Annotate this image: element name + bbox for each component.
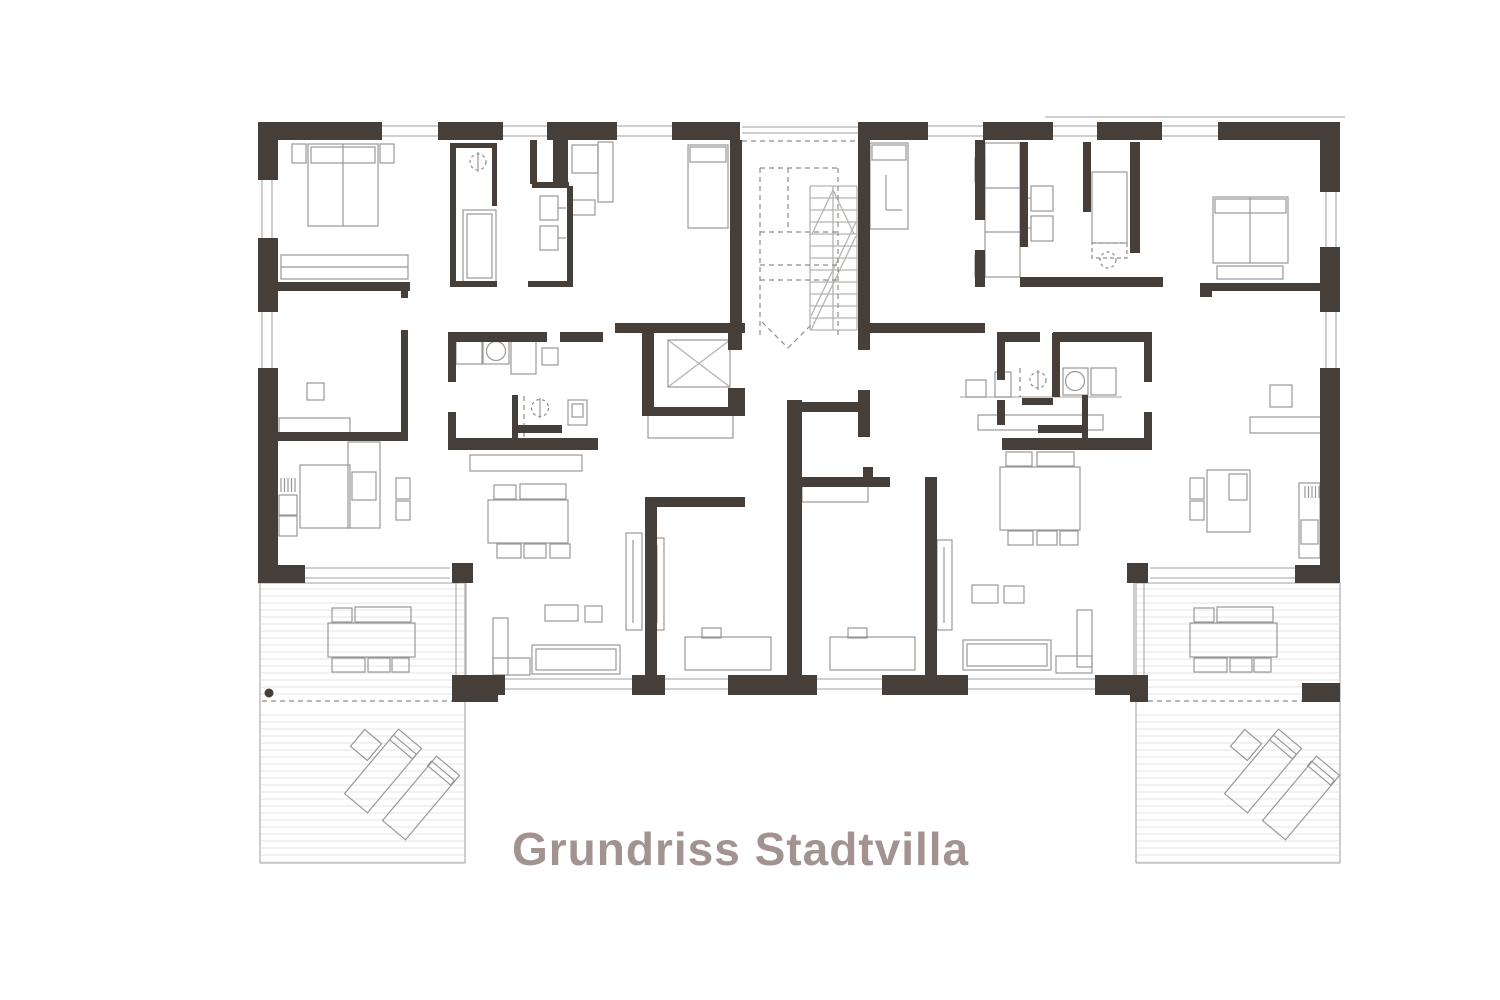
wall-segment [1320, 247, 1340, 312]
furniture-rect [1254, 658, 1271, 672]
furniture-rect [545, 605, 578, 621]
wall-segment [452, 683, 498, 702]
furniture-rect [690, 147, 726, 162]
wall-segment [728, 675, 817, 695]
wall-segment [1052, 333, 1060, 397]
furniture-rect [1230, 658, 1252, 672]
wall-segment [1082, 395, 1088, 440]
furniture-rect [524, 544, 546, 558]
wall-segment [450, 143, 497, 148]
wall-segment [672, 122, 740, 140]
wall-segment [1130, 683, 1148, 702]
furniture-rect [830, 637, 915, 670]
furniture-rect [1250, 417, 1322, 433]
furniture-rect [392, 658, 409, 672]
wall-segment [1038, 425, 1082, 433]
lounger-rect [390, 735, 417, 759]
furniture-rect [966, 380, 986, 397]
wall-segment [1002, 438, 1152, 450]
wall-segment [1144, 412, 1152, 440]
furniture-rect [1031, 216, 1053, 241]
wall-segment [1097, 122, 1162, 140]
furniture-rect [520, 484, 566, 499]
furniture-rect [1194, 658, 1227, 672]
furniture-rect [279, 418, 350, 433]
furniture-rect [1004, 586, 1024, 603]
dashed-rect [1092, 243, 1127, 258]
furniture-rect [1056, 656, 1092, 673]
furniture-rect [332, 608, 352, 622]
furniture-rect [550, 544, 570, 558]
wall-segment [278, 432, 408, 441]
wall-segment [1053, 332, 1152, 342]
wall-segment [567, 186, 573, 282]
wall-segment [512, 395, 518, 440]
wall-segment [401, 330, 408, 434]
wall-segment [518, 425, 562, 433]
wall-segment [642, 333, 654, 416]
plan-title: Grundriss Stadtvilla [512, 822, 969, 876]
wall-segment [1130, 142, 1140, 253]
furniture-rect [626, 533, 642, 630]
furniture-rect [307, 383, 324, 400]
wall-segment [258, 238, 278, 312]
wall-segment [975, 140, 985, 220]
wall-segment [560, 332, 603, 342]
furniture-rect [1091, 368, 1116, 395]
furniture-rect [685, 637, 771, 670]
wall-segment [258, 565, 305, 583]
wall-segment [1295, 565, 1340, 583]
furniture-rect [300, 465, 350, 528]
furniture-rect [1301, 520, 1318, 544]
furniture-rect [355, 607, 411, 622]
furniture-rect [493, 658, 530, 675]
wall-segment [547, 122, 617, 140]
furniture-rect [1060, 531, 1078, 545]
wall-segment [401, 288, 408, 298]
furniture-rect [1006, 452, 1032, 466]
furniture-rect [572, 200, 595, 215]
wall-segment [645, 497, 745, 507]
wall-segment [258, 122, 278, 180]
wall-segment [1200, 283, 1212, 297]
wall-segment [730, 140, 742, 350]
wall-segment [448, 332, 547, 342]
furniture-rect [497, 544, 521, 558]
furniture-rect [872, 145, 906, 160]
wall-segment [448, 412, 456, 440]
wall-segment [438, 122, 503, 140]
furniture-rect [494, 485, 516, 499]
furniture-rect [848, 628, 867, 638]
furniture-rect [380, 144, 394, 163]
furniture-rect [598, 142, 613, 202]
wall-segment [530, 140, 537, 184]
furniture-rect [332, 658, 365, 672]
furniture-rect [585, 606, 602, 622]
wall-segment [858, 390, 870, 437]
furniture-rect [572, 404, 583, 417]
window-glazing-line [812, 190, 833, 234]
furniture-rect [352, 472, 376, 500]
wall-segment [452, 563, 473, 583]
furniture-rect [396, 478, 410, 499]
wall-segment [642, 323, 745, 333]
dashed-line [788, 322, 814, 348]
furniture-rect [1037, 531, 1057, 545]
wall-segment [450, 281, 497, 287]
lounger-rect [1270, 735, 1297, 759]
lounger-rect [428, 761, 455, 785]
floor-plan-page: Grundriss Stadtvilla [0, 0, 1500, 1000]
wall-segment [863, 467, 873, 477]
furniture-rect [1000, 467, 1080, 530]
furniture-rect [648, 414, 733, 438]
furniture-rect [542, 348, 558, 365]
furniture-rect [368, 658, 390, 672]
wall-segment [1020, 277, 1163, 287]
furniture-rect [1037, 452, 1074, 466]
wall-segment [645, 497, 657, 695]
fixture-symbol-dashed-circle [1100, 252, 1116, 268]
furniture-rect [1194, 608, 1214, 622]
wall-segment [728, 333, 742, 350]
wall-segment [532, 182, 569, 188]
wall-segment [975, 250, 985, 287]
furniture-rect [470, 455, 582, 471]
furniture-rect [1190, 478, 1204, 499]
furniture-rect [292, 144, 306, 163]
furniture-layer [279, 142, 1339, 840]
furniture-rect [279, 495, 297, 515]
wall-segment [1020, 142, 1028, 247]
wall-segment [1200, 283, 1327, 291]
wall-segment [997, 400, 1005, 425]
wall-segment [492, 148, 497, 206]
furniture-rect [1229, 474, 1247, 500]
furniture-rect [1217, 266, 1283, 279]
walls-layer [258, 122, 1340, 702]
wall-segment [983, 122, 1053, 140]
furniture-rect [1217, 607, 1273, 622]
furniture-rect [967, 644, 1047, 666]
furniture-rect [540, 226, 558, 250]
furniture-rect [972, 585, 998, 603]
furniture-rect [1190, 623, 1277, 657]
furniture-rect [1092, 172, 1127, 243]
wall-segment [997, 332, 1040, 342]
window-glazing-line [833, 190, 854, 234]
furniture-rect [1031, 186, 1053, 211]
furniture-rect [1270, 385, 1292, 407]
wall-segment [858, 122, 928, 140]
furniture-rect [540, 196, 558, 220]
wall-segment [997, 342, 1005, 380]
dashed-line [762, 322, 788, 348]
furniture-rect [536, 649, 616, 670]
wall-segment [1302, 683, 1340, 702]
wall-segment [448, 438, 598, 450]
wall-segment [258, 368, 278, 583]
furniture-rect [572, 145, 598, 173]
wall-segment [528, 281, 573, 287]
wall-segment [1320, 122, 1340, 192]
wall-segment [553, 140, 568, 184]
furniture-rect [279, 516, 297, 536]
furniture-rect [467, 214, 492, 278]
lounger-rect [1308, 761, 1335, 785]
wall-segment [1022, 398, 1053, 405]
furniture-rect [511, 338, 536, 374]
wall-segment [858, 140, 870, 350]
wall-segment [787, 400, 802, 695]
furniture-rect [488, 500, 568, 543]
furniture-rect [328, 623, 415, 657]
wall-segment [278, 282, 410, 291]
wall-segment [802, 477, 890, 487]
furniture-rect [702, 628, 721, 638]
wall-segment [448, 342, 456, 382]
wall-segment [925, 477, 937, 695]
wall-segment [450, 143, 456, 283]
furniture-rect [1190, 501, 1204, 520]
wall-segment [642, 407, 745, 416]
furniture-rect [985, 143, 1020, 277]
furniture-rect [1008, 531, 1033, 545]
wall-segment [870, 323, 985, 333]
furniture-rect [668, 340, 730, 387]
wall-segment [1144, 342, 1152, 382]
furniture-rect [396, 501, 410, 520]
wall-segment [1320, 368, 1340, 583]
wall-segment [1127, 563, 1148, 583]
terrace-dot-marker [265, 689, 274, 698]
wall-segment [1083, 142, 1091, 212]
